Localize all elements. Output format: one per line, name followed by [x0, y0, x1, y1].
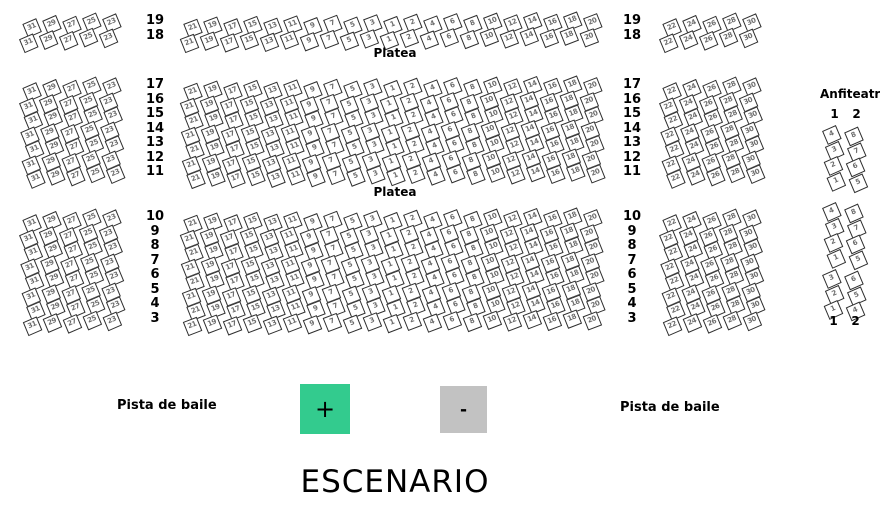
seat-25[interactable]: 25 — [79, 27, 99, 47]
row-number-label: 10 — [619, 210, 645, 225]
seat-3[interactable]: 3 — [366, 165, 386, 184]
seat-23[interactable]: 23 — [103, 311, 123, 331]
row-number-label: 14 — [142, 122, 168, 137]
seat-20[interactable]: 20 — [586, 164, 606, 183]
seat-22[interactable]: 22 — [659, 33, 679, 53]
platea-label-top: Platea — [185, 46, 605, 60]
seat-block: 31292725233129272523 — [24, 8, 125, 43]
seat-30[interactable]: 30 — [743, 311, 763, 331]
seat-11[interactable]: 11 — [283, 313, 303, 332]
stage-label: ESCENARIO — [185, 464, 605, 500]
row-number-label: 9 — [619, 225, 645, 240]
seat-16[interactable]: 16 — [546, 165, 566, 184]
row-number-label: 6 — [619, 268, 645, 283]
seat-19[interactable]: 19 — [203, 314, 223, 333]
seat-31[interactable]: 31 — [23, 316, 43, 336]
anfiteatro-title: Anfiteatro — [820, 87, 880, 101]
row-number-label: 7 — [619, 254, 645, 269]
seat-18[interactable]: 18 — [559, 26, 579, 45]
seat-27[interactable]: 27 — [59, 30, 79, 50]
seat-29[interactable]: 29 — [43, 313, 63, 333]
anfiteatro-column-2: 8765 — [846, 128, 865, 191]
seating-map: 3129272523312927252319182119171513119753… — [0, 0, 880, 526]
seat-17[interactable]: 17 — [223, 316, 243, 335]
row-number-labels: 17161514131211 — [619, 78, 645, 180]
seat-block: 2224262830222426283022242628302224262830… — [664, 204, 769, 326]
row-number-label: 9 — [142, 225, 168, 240]
seat-18[interactable]: 18 — [563, 309, 583, 328]
row-number-label: 3 — [142, 312, 168, 327]
row-number-label: 15 — [142, 107, 168, 122]
anfiteatro-col2-label-top: 2 — [849, 107, 864, 121]
seat-26[interactable]: 26 — [699, 30, 719, 50]
seat-31[interactable]: 31 — [19, 33, 39, 53]
row-number-label: 8 — [142, 239, 168, 254]
dance-floor-label-right: Pista de baile — [620, 400, 720, 415]
zoom-out-button[interactable]: - — [440, 386, 487, 433]
row-number-label: 13 — [142, 136, 168, 151]
row-number-label: 18 — [619, 29, 645, 44]
seat-14[interactable]: 14 — [526, 163, 546, 182]
seat-4[interactable]: 4 — [423, 313, 443, 332]
seat-16[interactable]: 16 — [543, 311, 563, 330]
seat-15[interactable]: 15 — [243, 313, 263, 332]
seat-6[interactable]: 6 — [446, 164, 466, 183]
row-number-label: 14 — [619, 122, 645, 137]
seat-10[interactable]: 10 — [486, 164, 506, 183]
seat-27[interactable]: 27 — [63, 313, 83, 333]
seat-29[interactable]: 29 — [39, 30, 59, 50]
seat-9[interactable]: 9 — [303, 315, 323, 334]
seat-12[interactable]: 12 — [503, 312, 523, 331]
seat-6[interactable]: 6 — [443, 311, 463, 330]
seat-8[interactable]: 8 — [466, 166, 486, 185]
seat-block: 3129272523312927252331292725233129272523… — [24, 72, 128, 180]
seat-6[interactable]: 6 — [440, 28, 460, 47]
dance-floor-label-left: Pista de baile — [117, 398, 217, 413]
seat-11[interactable]: 11 — [286, 166, 306, 185]
seat-14[interactable]: 14 — [523, 310, 543, 329]
seat-20[interactable]: 20 — [580, 28, 600, 47]
seat-23[interactable]: 23 — [99, 28, 119, 48]
seat-10[interactable]: 10 — [483, 310, 503, 329]
row-number-label: 16 — [619, 93, 645, 108]
seat-12[interactable]: 12 — [506, 165, 526, 184]
seat-7[interactable]: 7 — [323, 312, 343, 331]
seat-2[interactable]: 2 — [400, 28, 420, 47]
seat-block: 2119171513119753124681012141618202119171… — [185, 72, 608, 179]
seat-19[interactable]: 19 — [206, 167, 226, 186]
seat-2[interactable]: 2 — [406, 165, 426, 184]
row-number-labels: 1918 — [619, 14, 645, 43]
seat-25[interactable]: 25 — [83, 310, 103, 330]
row-number-label: 4 — [619, 297, 645, 312]
row-number-label: 19 — [142, 14, 168, 29]
row-number-label: 18 — [142, 29, 168, 44]
anfiteatro-col1-label-bottom: 1 — [826, 314, 841, 328]
seat-13[interactable]: 13 — [263, 315, 283, 334]
row-number-labels: 1918 — [142, 14, 168, 43]
seat-3[interactable]: 3 — [363, 312, 383, 331]
row-number-label: 7 — [142, 254, 168, 269]
row-number-labels: 109876543 — [142, 210, 168, 326]
row-number-label: 17 — [142, 78, 168, 93]
seat-30[interactable]: 30 — [739, 28, 759, 48]
seat-7[interactable]: 7 — [326, 166, 346, 185]
seat-1[interactable]: 1 — [386, 167, 406, 186]
row-number-labels: 109876543 — [619, 210, 645, 326]
seat-8[interactable]: 8 — [463, 312, 483, 331]
seat-block: 3129272523312927252331292725233129272523… — [24, 204, 129, 326]
anfiteatro-col1-label-top: 1 — [827, 107, 842, 121]
anfiteatro-column-1: 321 — [824, 271, 842, 319]
seat-block: 2224262830222426283022242628302224262830… — [664, 72, 768, 180]
row-number-label: 4 — [142, 297, 168, 312]
seat-18[interactable]: 18 — [566, 162, 586, 181]
anfiteatro-column-2: 8765 — [846, 205, 865, 268]
seat-4[interactable]: 4 — [426, 166, 446, 185]
anfiteatro-column-1: 4321 — [824, 127, 843, 190]
row-number-label: 8 — [619, 239, 645, 254]
seat-28[interactable]: 28 — [723, 310, 743, 330]
row-number-label: 3 — [619, 312, 645, 327]
seat-16[interactable]: 16 — [540, 28, 560, 47]
seat-2[interactable]: 2 — [403, 311, 423, 330]
seat-5[interactable]: 5 — [343, 314, 363, 333]
row-number-label: 11 — [142, 165, 168, 180]
seat-22[interactable]: 22 — [663, 316, 683, 336]
row-number-label: 6 — [142, 268, 168, 283]
row-number-label: 5 — [619, 283, 645, 298]
row-number-label: 12 — [142, 151, 168, 166]
seat-block: 2119171513119753124681012141618202119171… — [185, 204, 609, 326]
seat-28[interactable]: 28 — [719, 27, 739, 47]
row-number-label: 10 — [142, 210, 168, 225]
seat-14[interactable]: 14 — [520, 27, 540, 46]
seat-21[interactable]: 21 — [183, 316, 203, 335]
row-number-label: 5 — [142, 283, 168, 298]
seat-26[interactable]: 26 — [703, 313, 723, 333]
seat-10[interactable]: 10 — [480, 27, 500, 46]
seat-24[interactable]: 24 — [683, 313, 703, 333]
row-number-label: 16 — [142, 93, 168, 108]
anfiteatro-col2-label-bottom: 2 — [848, 314, 863, 328]
row-number-label: 17 — [619, 78, 645, 93]
platea-label-middle: Platea — [185, 185, 605, 199]
anfiteatro-column-2: 654 — [846, 272, 864, 320]
row-number-label: 15 — [619, 107, 645, 122]
zoom-in-button[interactable]: + — [300, 384, 350, 434]
seat-block: 2119171513119753124681012141618202119171… — [185, 8, 606, 43]
row-number-label: 19 — [619, 14, 645, 29]
row-number-labels: 17161514131211 — [142, 78, 168, 180]
row-number-label: 13 — [619, 136, 645, 151]
anfiteatro-column-1: 4321 — [824, 204, 843, 267]
row-number-label: 12 — [619, 151, 645, 166]
seat-block: 22242628302224262830 — [664, 8, 765, 43]
seat-24[interactable]: 24 — [679, 30, 699, 50]
seat-1[interactable]: 1 — [383, 313, 403, 332]
row-number-label: 11 — [619, 165, 645, 180]
seat-20[interactable]: 20 — [583, 311, 603, 330]
seat-5[interactable]: 5 — [346, 167, 366, 186]
seat-15[interactable]: 15 — [246, 167, 266, 186]
